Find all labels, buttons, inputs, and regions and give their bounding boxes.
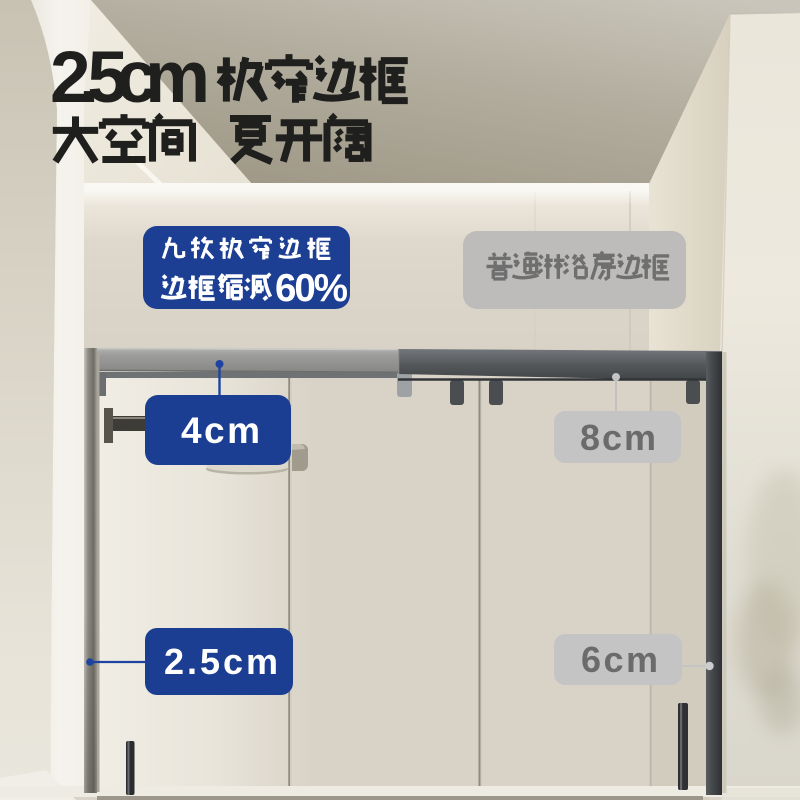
svg-text:6cm: 6cm (581, 639, 658, 680)
svg-text:8cm: 8cm (580, 417, 656, 458)
svg-text:2.5cm: 2.5cm (50, 37, 210, 118)
svg-text:4cm: 4cm (181, 410, 260, 451)
svg-text:60%: 60% (275, 267, 348, 310)
